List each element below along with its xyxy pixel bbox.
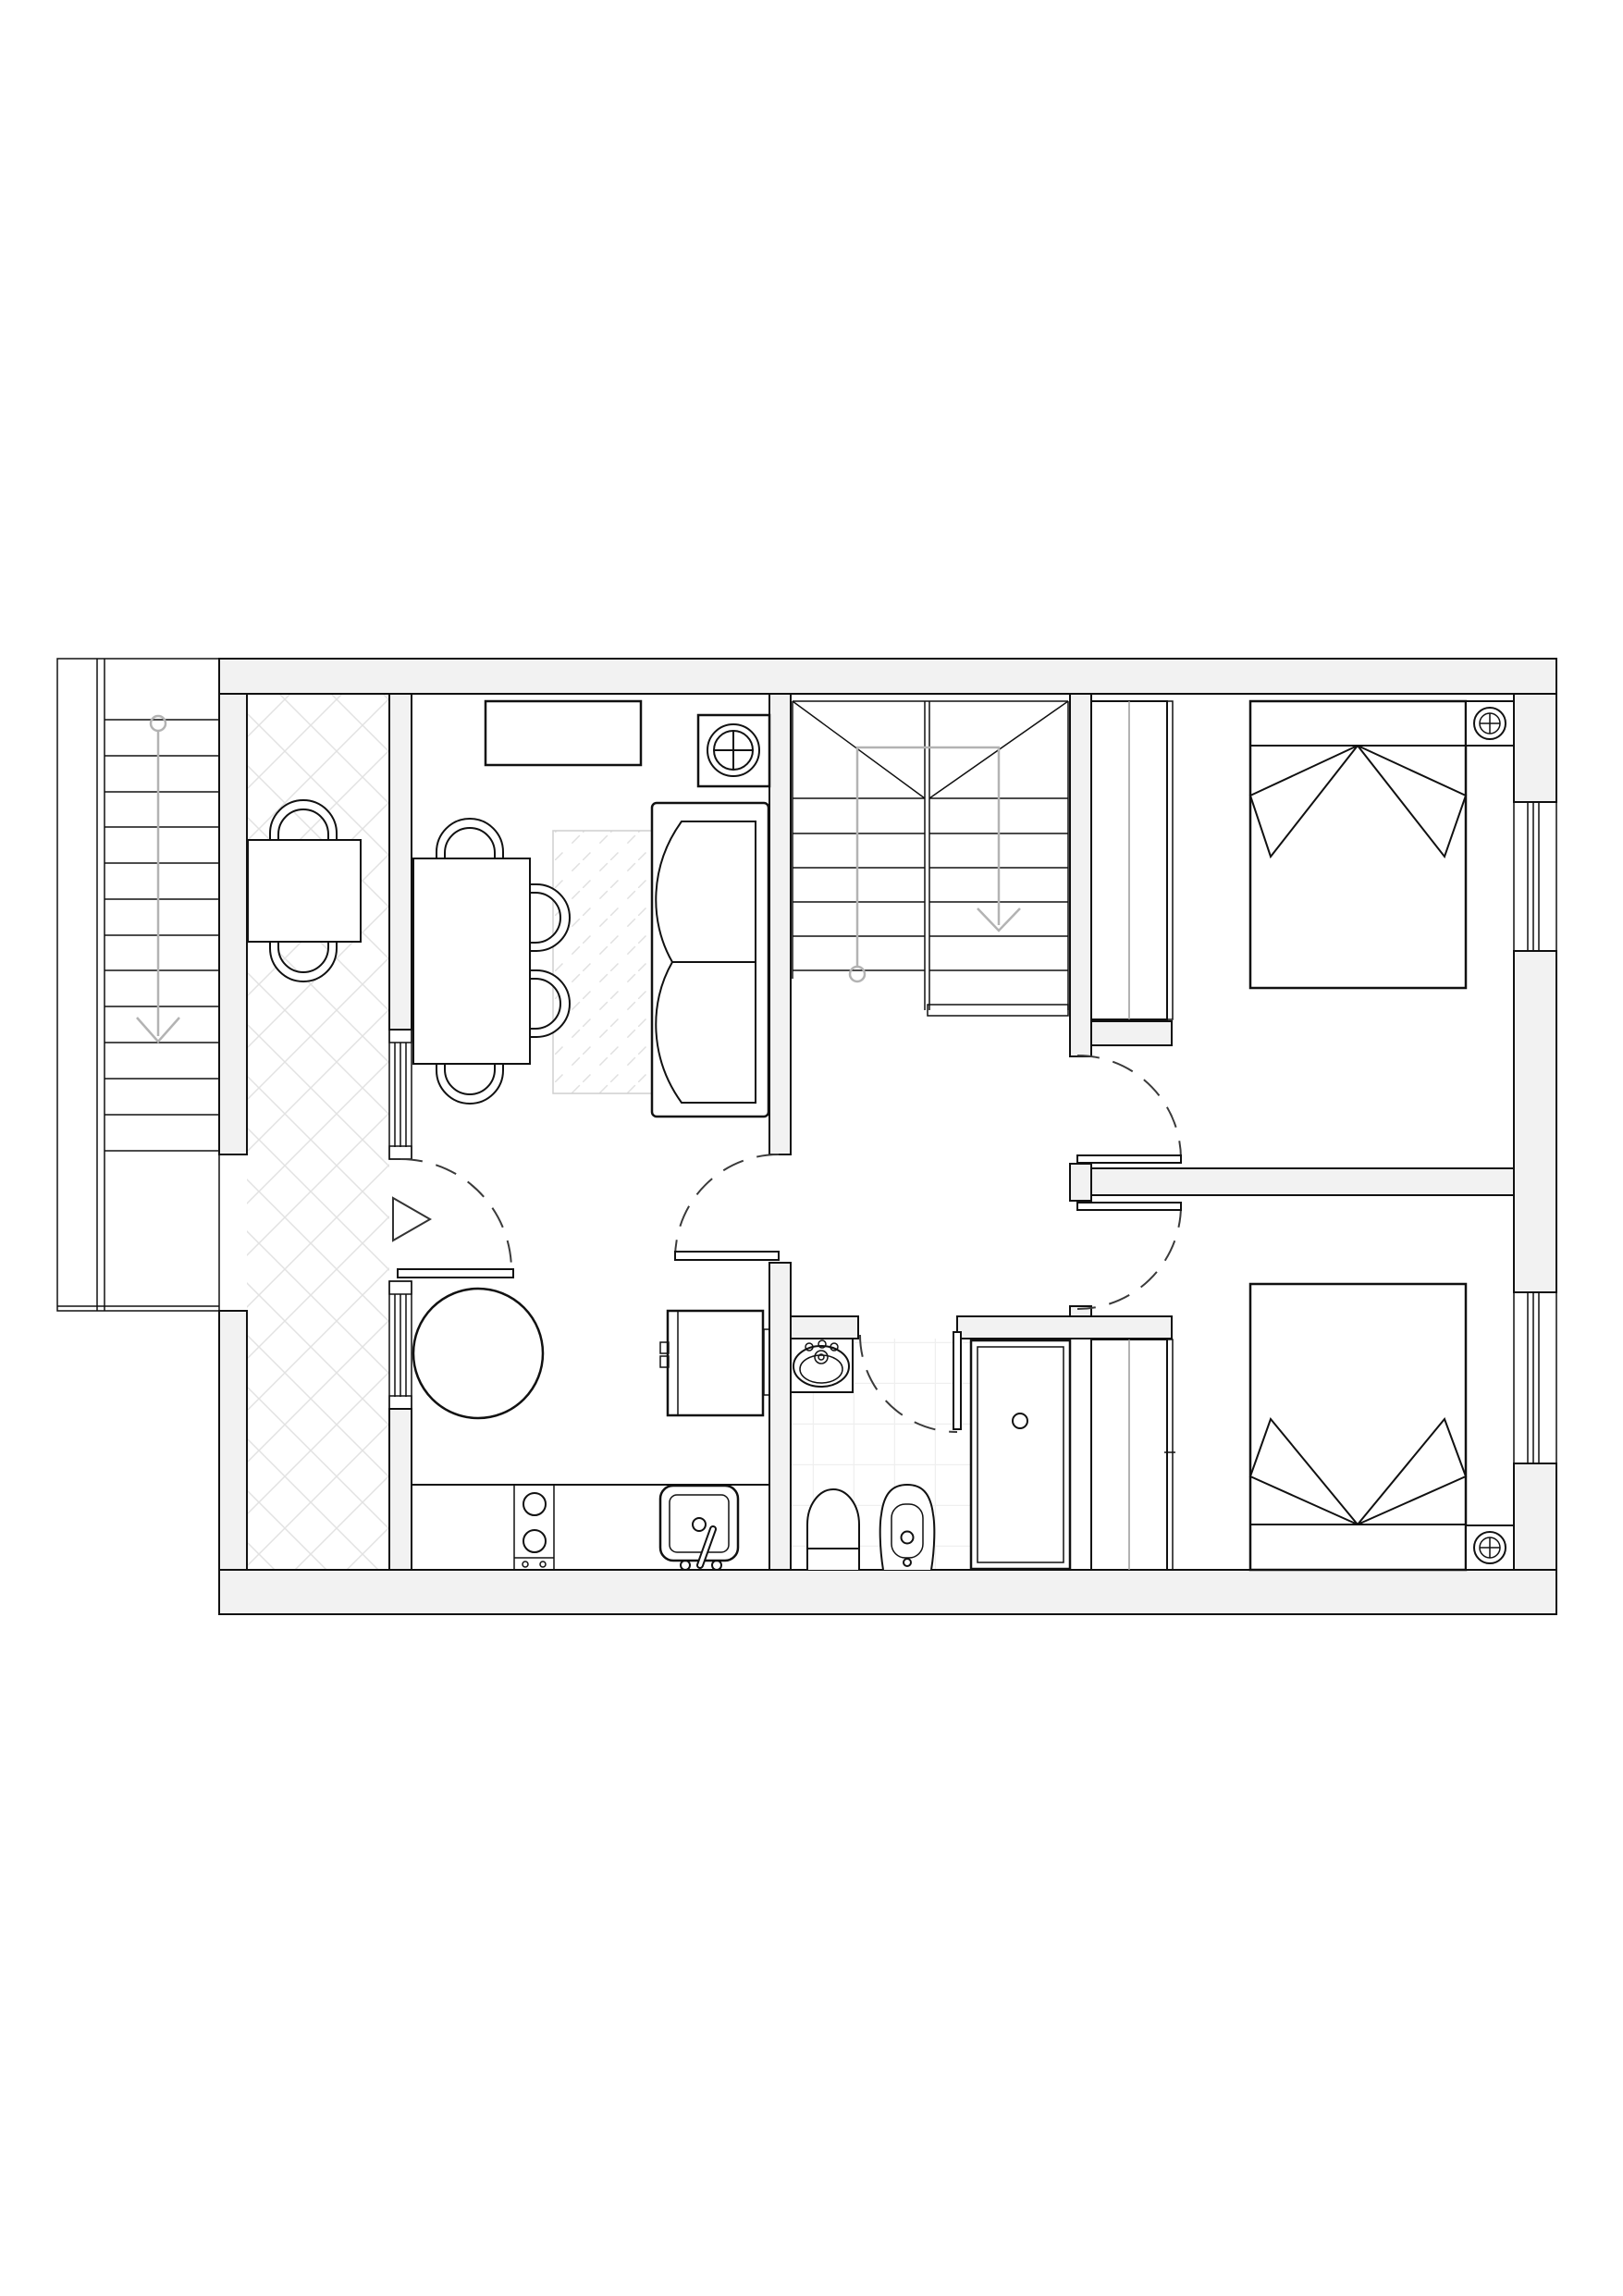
kitchen <box>412 1289 769 1570</box>
terrace-corridor-floor <box>247 694 389 1570</box>
living-dining-room <box>413 701 769 1117</box>
central-wall-pillar <box>1070 1164 1091 1201</box>
terrace-table <box>248 840 361 942</box>
corner-fixture-icon-2 <box>1466 1525 1514 1570</box>
wall-right-middle <box>1514 951 1556 1292</box>
interior-staircase <box>793 701 1068 1016</box>
wall-corridor-left-upper <box>219 694 247 1154</box>
area-rug <box>553 831 652 1093</box>
wardrobe-bedroom-1 <box>1091 701 1173 1019</box>
double-bed-1 <box>1250 701 1466 988</box>
toilet <box>807 1489 859 1570</box>
living-room-door <box>675 1154 779 1260</box>
bedroom-1 <box>1091 701 1514 1019</box>
shower-tub <box>971 1340 1070 1569</box>
wall-living-stairhall <box>769 694 791 1154</box>
wall-bottom <box>219 1570 1556 1614</box>
bedroom-2-window <box>1514 1292 1556 1463</box>
dining-table <box>413 858 530 1064</box>
ceiling-fixture-icon <box>698 715 769 786</box>
wall-corridor-kitchen-upper <box>389 694 412 1030</box>
refrigerator <box>660 1311 769 1415</box>
exterior-staircase <box>57 659 219 1311</box>
wall-bathroom-north-left <box>791 1316 858 1339</box>
kitchen-sink <box>660 1486 738 1570</box>
floor-plan-page <box>0 0 1623 2296</box>
corridor-window-lower <box>389 1281 412 1409</box>
sideboard <box>486 701 641 765</box>
wall-between-bedrooms <box>1091 1168 1514 1195</box>
wall-corridor-kitchen-lower <box>389 1409 412 1570</box>
stair-path-arrow-icon <box>850 747 1020 981</box>
interior-stair-treads <box>793 798 1068 970</box>
entrance-door <box>393 1159 513 1278</box>
kitchen-counter <box>412 1485 769 1570</box>
wall-corridor-left-lower <box>219 1311 247 1570</box>
wall-right-lower <box>1514 1463 1556 1570</box>
wall-top <box>219 659 1556 694</box>
wall-bathroom-north-right <box>957 1316 1172 1339</box>
washbasin-counter <box>791 1339 853 1392</box>
bidet <box>880 1485 935 1570</box>
stair-down-arrow-icon <box>137 716 179 1042</box>
wardrobe1-header <box>1091 1021 1172 1045</box>
wall-right-upper <box>1514 694 1556 802</box>
dining-chair-bottom <box>436 1064 503 1104</box>
double-bed-2 <box>1250 1284 1466 1570</box>
wall-stairhall-bedroom1 <box>1070 694 1091 1056</box>
bedroom-2-door <box>1077 1203 1181 1309</box>
wall-kitchen-bathroom <box>769 1263 791 1570</box>
wardrobe-bedroom-2 <box>1091 1339 1175 1570</box>
bedroom-1-window <box>1514 802 1556 951</box>
entry-direction-icon <box>393 1198 430 1241</box>
exterior-stair-treads <box>105 720 219 1151</box>
sofa <box>652 803 768 1117</box>
dining-chair-top <box>436 819 503 858</box>
corridor-window-upper <box>389 1030 412 1159</box>
floor-plan-drawing <box>0 0 1623 2296</box>
corner-fixture-icon-1 <box>1466 701 1514 746</box>
round-table <box>413 1289 543 1418</box>
bedroom-1-door <box>1077 1055 1181 1163</box>
winder-diagonal-left <box>793 701 925 798</box>
